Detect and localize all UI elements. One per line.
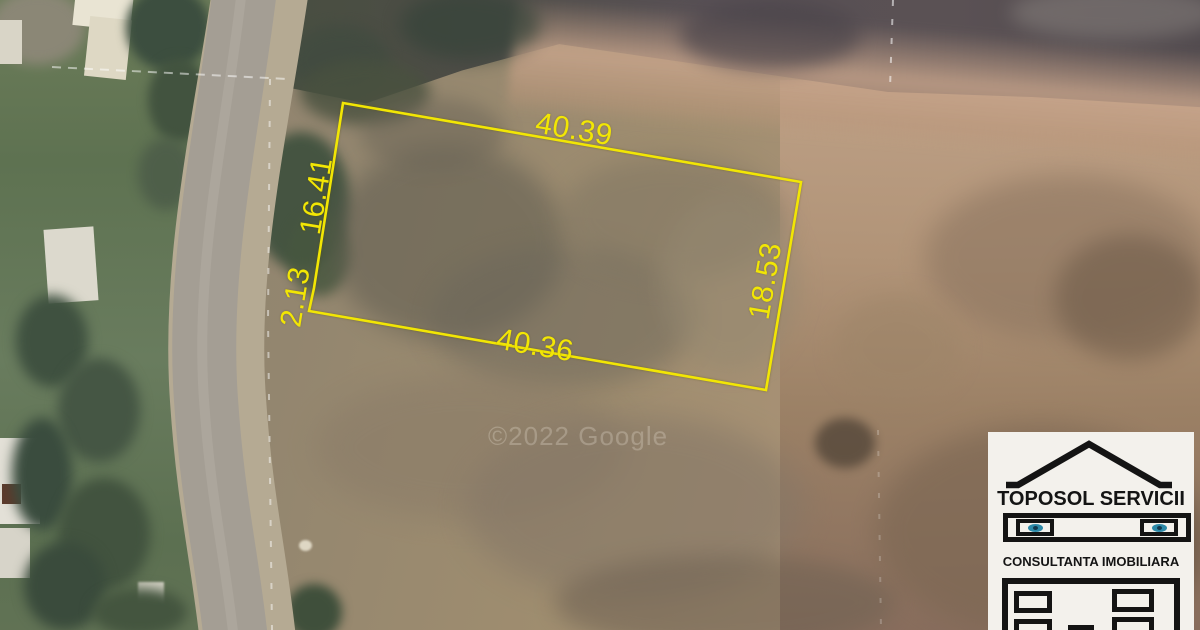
- building-door-icon: [1068, 625, 1094, 630]
- building-window-icon: [1014, 591, 1052, 613]
- eye-icon: [1152, 524, 1167, 532]
- building-icon: [1002, 578, 1180, 630]
- window-eye-icon: [1016, 519, 1054, 536]
- logo-subtitle: CONSULTANTA IMOBILIARA: [988, 554, 1194, 569]
- roof-icon: [988, 438, 1194, 490]
- building-window-icon: [1112, 617, 1154, 630]
- eye-icon: [1028, 524, 1043, 532]
- satellite-map: ©2022 Google 40.39 16.41 2.13 40.36 18.5…: [0, 0, 1200, 630]
- google-watermark: ©2022 Google: [488, 421, 688, 452]
- toposol-logo-card: TOPOSOL SERVICII CONSULTANTA IMOBILIARA: [988, 432, 1194, 630]
- window-eye-icon: [1140, 519, 1178, 536]
- building-window-icon: [1014, 619, 1052, 630]
- building-window-icon: [1112, 589, 1154, 612]
- windows-eyes-icon: [1003, 513, 1191, 542]
- logo-title: TOPOSOL SERVICII: [988, 488, 1194, 511]
- cadastral-dash-right: [878, 430, 881, 630]
- cadastral-dash-top-right: [890, 0, 893, 88]
